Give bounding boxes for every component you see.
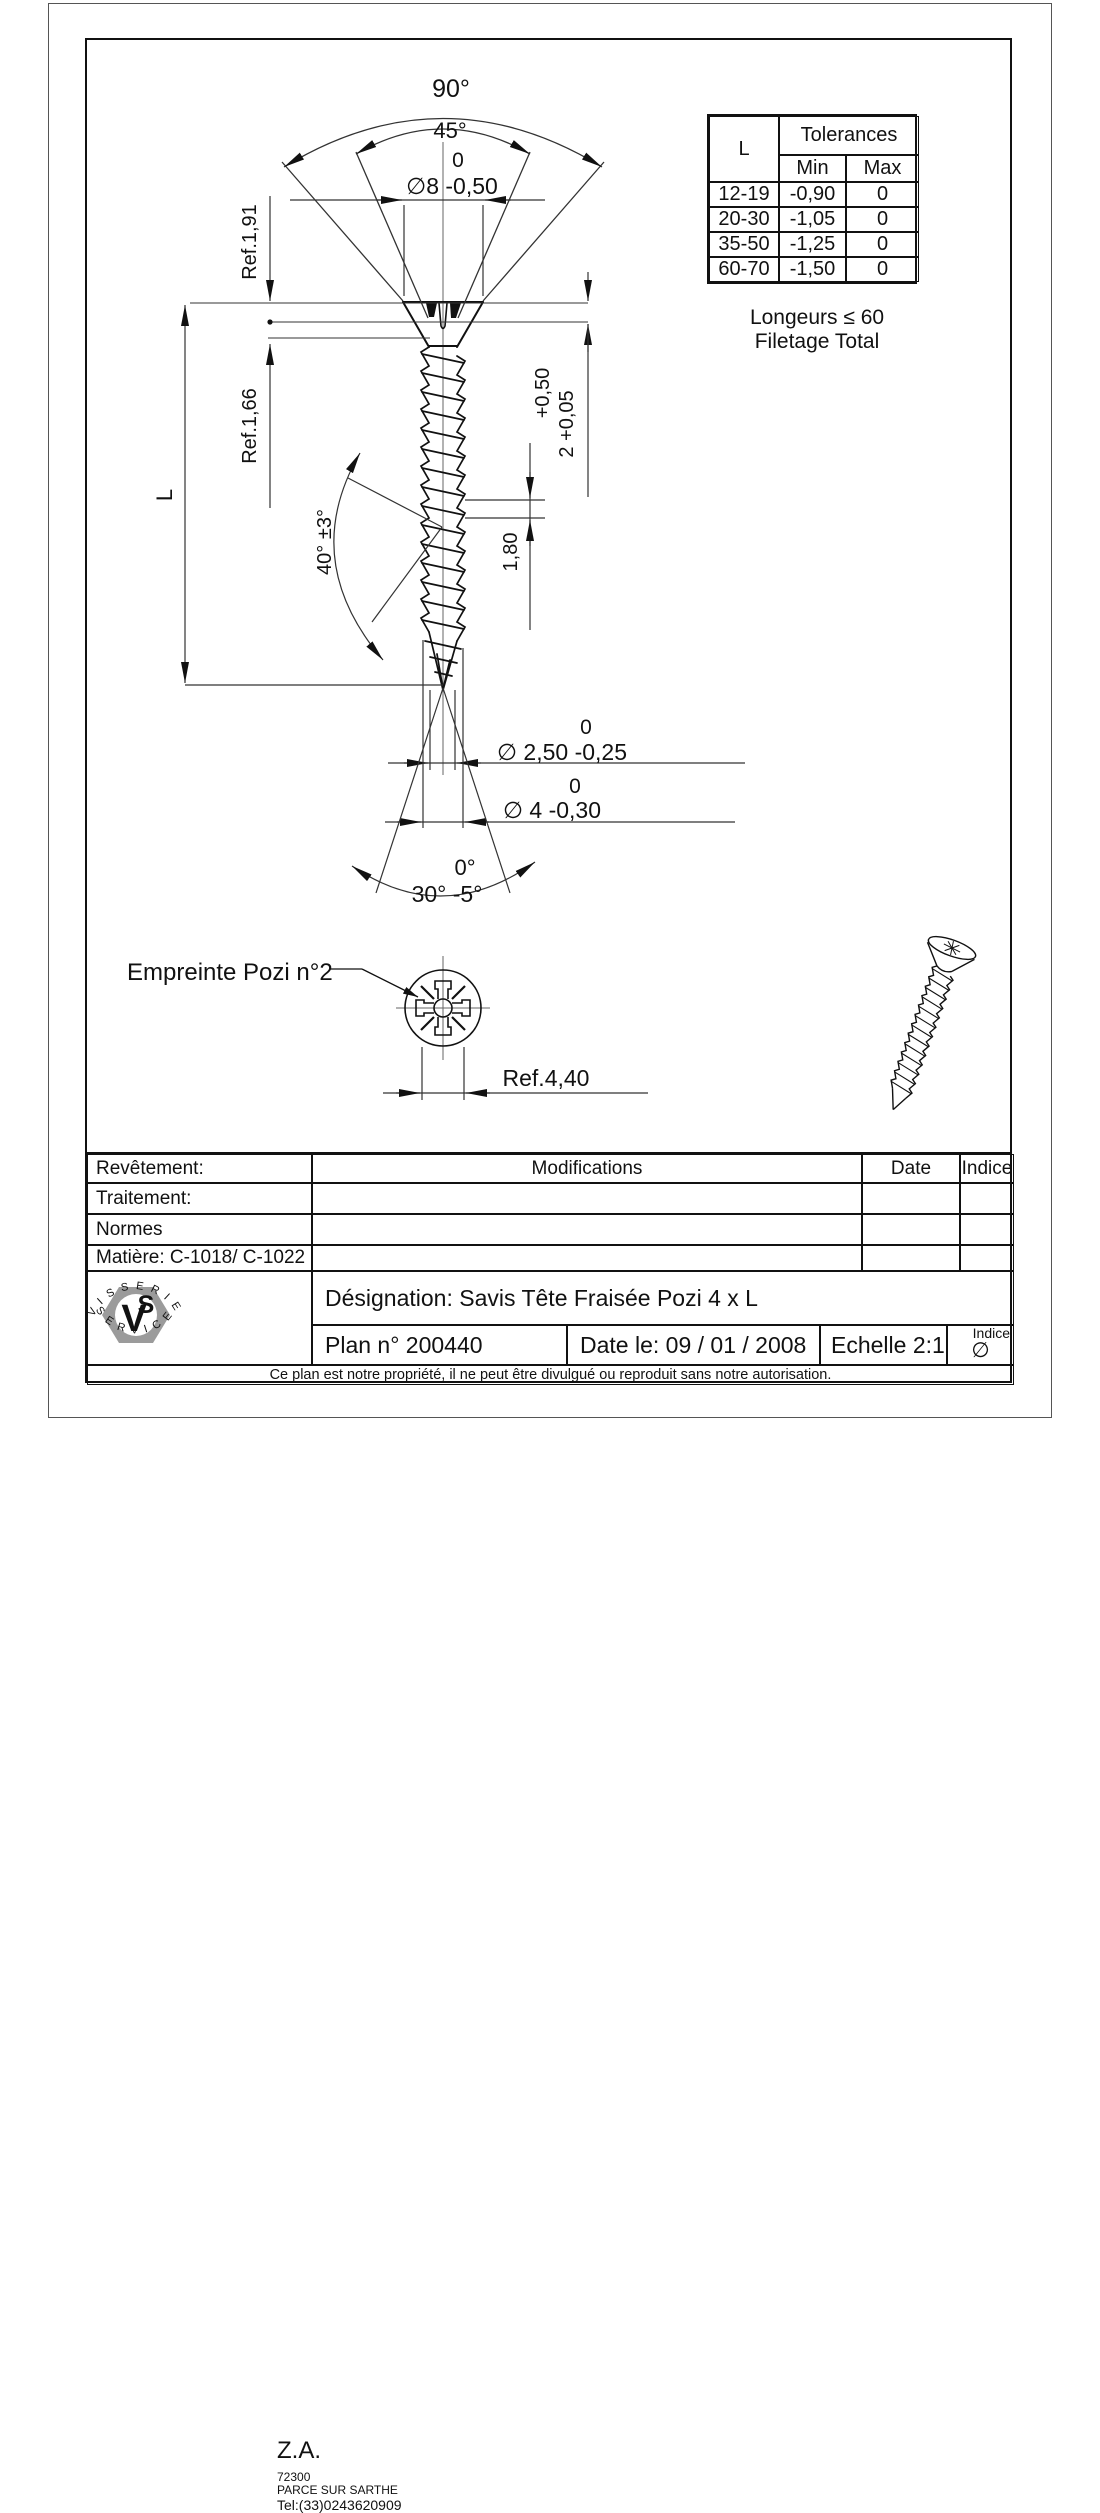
drawing-sheet: { "colors": {"ink": "#111111", "thin_lin… xyxy=(0,0,1100,1422)
indice-cell-empty xyxy=(960,1183,1014,1214)
company-tel: Tel:(33)0243620909 xyxy=(277,2497,402,2513)
indice-cell-empty xyxy=(960,1214,1014,1245)
date-cell-empty xyxy=(862,1183,960,1214)
scale: Echelle 2:1 xyxy=(820,1325,947,1365)
table-cell: -1,05 xyxy=(779,207,846,232)
indice-box: Indice ∅ xyxy=(947,1325,1014,1365)
length-note: Longeurs ≤ 60 Filetage Total xyxy=(712,306,922,353)
table-cell: 20-30 xyxy=(709,207,779,232)
indice-header: Indice xyxy=(960,1154,1014,1183)
plan-number: Plan n° 200440 xyxy=(312,1325,567,1365)
table-cell: 35-50 xyxy=(709,232,779,257)
tolerance-table-header: Tolerances xyxy=(779,116,919,155)
company-postal: 72300 xyxy=(277,2470,310,2484)
title-block: Revêtement: Modifications Date Indice Tr… xyxy=(85,1152,1012,1383)
modifications-header: Modifications xyxy=(312,1154,862,1183)
normes-label: Normes xyxy=(87,1214,312,1245)
table-cell: 60-70 xyxy=(709,257,779,282)
plan-date: Date le: 09 / 01 / 2008 xyxy=(567,1325,820,1365)
table-cell: -1,25 xyxy=(779,232,846,257)
modifications-cell-empty xyxy=(312,1245,862,1271)
length-note-line2: Filetage Total xyxy=(712,330,922,354)
table-cell: 0 xyxy=(846,257,919,282)
revetement-label: Revêtement: xyxy=(87,1154,312,1183)
designation: Désignation: Savis Tête Fraisée Pozi 4 x… xyxy=(312,1271,1014,1325)
company-cell xyxy=(87,1271,312,1365)
modifications-cell-empty xyxy=(312,1214,862,1245)
table-cell: 0 xyxy=(846,207,919,232)
company-za: Z.A. xyxy=(277,2437,321,2465)
date-cell-empty xyxy=(862,1245,960,1271)
table-cell: -1,50 xyxy=(779,257,846,282)
indice-box-value: ∅ xyxy=(971,1340,989,1361)
table-cell: 0 xyxy=(846,232,919,257)
matiere-label: Matière: C-1018/ C-1022 xyxy=(87,1245,312,1271)
modifications-cell-empty xyxy=(312,1183,862,1214)
table-cell: 0 xyxy=(846,182,919,207)
tolerance-table-l-header: L xyxy=(709,116,779,182)
tolerance-table-min-header: Min xyxy=(779,155,846,182)
date-header: Date xyxy=(862,1154,960,1183)
property-notice: Ce plan est notre propriété, il ne peut … xyxy=(87,1365,1014,1385)
tolerance-table: L Tolerances Min Max 12-19 -0,90 0 20-30… xyxy=(707,114,917,284)
table-cell: -0,90 xyxy=(779,182,846,207)
length-note-line1: Longeurs ≤ 60 xyxy=(712,306,922,330)
date-cell-empty xyxy=(862,1214,960,1245)
indice-box-label: Indice xyxy=(973,1326,1013,1340)
traitement-label: Traitement: xyxy=(87,1183,312,1214)
tolerance-table-max-header: Max xyxy=(846,155,919,182)
company-city: PARCE SUR SARTHE xyxy=(277,2483,398,2497)
indice-cell-empty xyxy=(960,1245,1014,1271)
table-cell: 12-19 xyxy=(709,182,779,207)
